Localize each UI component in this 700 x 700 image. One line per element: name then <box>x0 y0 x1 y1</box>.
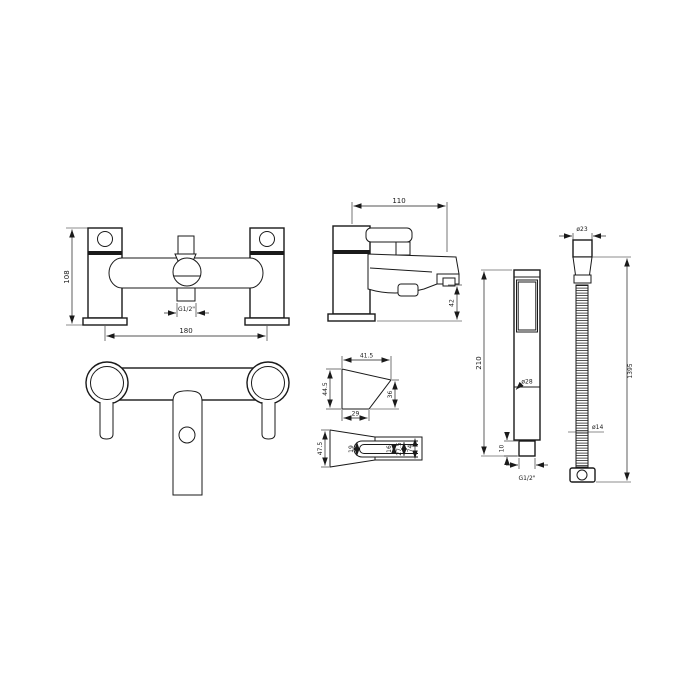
side-diverter-knob <box>398 284 418 296</box>
bracket-side-view: 41.5 44.5 36 29 <box>322 353 399 422</box>
bracket-front-right-dim-label: 74 <box>407 445 414 453</box>
plan-right-lever <box>262 402 275 439</box>
plan-left-handle-outer <box>86 362 128 404</box>
plan-right-handle-outer <box>247 362 289 404</box>
side-lever <box>366 228 412 242</box>
bracket-side-left-dim-label: 44.5 <box>322 382 329 396</box>
front-height-dim-label: 108 <box>63 270 71 283</box>
hose-cone <box>573 257 592 275</box>
left-handle-circle <box>98 232 113 247</box>
handset-view: ø28 210 10 G1/2" <box>475 270 548 482</box>
right-pillar-band <box>250 251 284 255</box>
handset-connector-dim-label: 10 <box>499 445 506 453</box>
bracket-front-mid-dim-label: 27.5 <box>396 442 403 456</box>
hose-view: ø23 1395 ø14 <box>559 226 634 482</box>
bracket-side-top-dim-label: 41.5 <box>360 353 374 360</box>
hose-collar <box>574 275 591 283</box>
diverter-circle <box>173 258 201 286</box>
hose-mid-diameter-dim-label: ø14 <box>592 424 603 431</box>
hose-top-fitting <box>573 240 592 257</box>
plan-view <box>86 362 289 495</box>
bracket-front-left-dim-label: 47.5 <box>317 442 324 456</box>
front-view: 108 180 G1/2" <box>63 228 289 341</box>
shower-outlet-stub <box>178 236 194 254</box>
side-base-flange <box>328 314 375 321</box>
plan-left-lever <box>100 402 113 439</box>
bottom-outlet <box>177 288 195 301</box>
side-pillar <box>333 226 370 314</box>
front-outlet-thread-label: G1/2" <box>178 306 195 313</box>
bracket-front-clip-dim-label: 19 <box>348 445 355 453</box>
handset-thread-label: G1/2" <box>518 475 535 482</box>
right-handle-circle <box>260 232 275 247</box>
left-pillar-band <box>88 251 122 255</box>
hose-length-dim-label: 1395 <box>627 363 634 378</box>
bracket-front-inner-dim-label: 16 <box>386 445 393 453</box>
hose-flex-body <box>576 285 588 467</box>
handset-connector <box>519 441 535 456</box>
bracket-side-right-dim-label: 36 <box>387 391 394 399</box>
technical-drawing: 108 180 G1/2" <box>0 0 700 700</box>
left-base-flange <box>83 318 127 325</box>
hose-top-diameter-dim-label: ø23 <box>576 226 587 233</box>
side-pillar-band <box>333 250 370 254</box>
bracket-front-view: 47.5 19 16 27.5 74 <box>317 430 422 467</box>
front-centres-dim-label: 180 <box>179 327 192 335</box>
side-projection-dim-label: 110 <box>392 197 405 205</box>
bracket-side-shape <box>342 369 391 409</box>
handset-length-dim-label: 210 <box>475 356 483 369</box>
right-base-flange <box>245 318 289 325</box>
bracket-side-bottom-dim-label: 29 <box>352 411 360 418</box>
side-spout-height-dim-label: 42 <box>449 299 456 307</box>
handset-diameter-dim-label: ø28 <box>521 379 532 386</box>
side-lever-post <box>396 242 410 255</box>
side-view: 110 42 <box>328 197 462 321</box>
